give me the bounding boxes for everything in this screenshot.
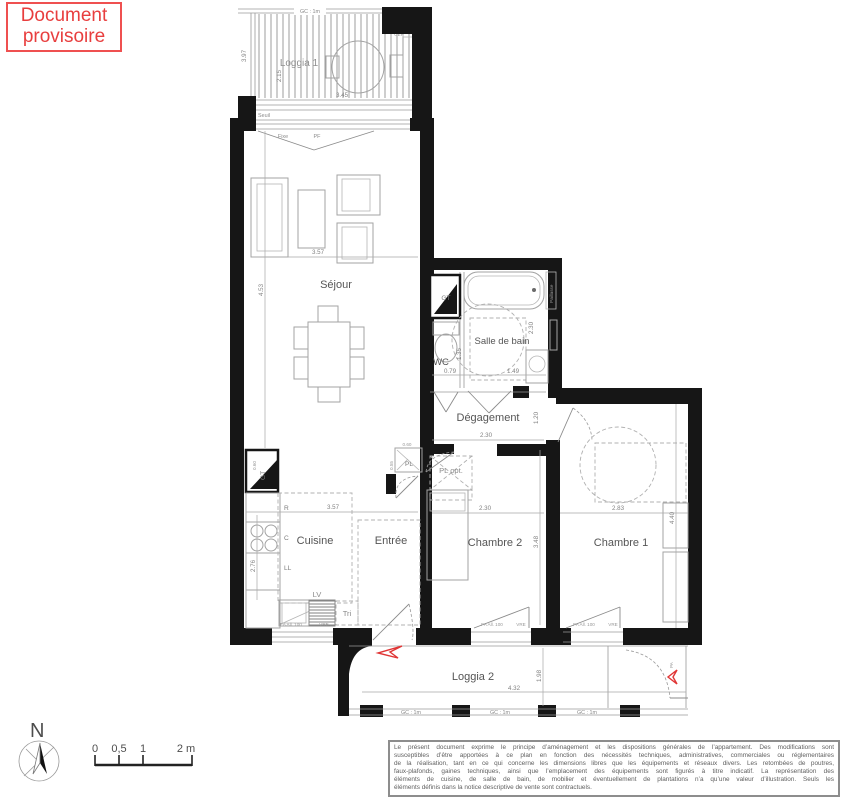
guardrail-label-3: GC : 1m [577,710,598,716]
room-label-sdb: Salle de bain [475,336,530,347]
room-label-sejour: Séjour [320,279,352,291]
room-label-entree: Entrée [375,535,407,547]
loggia2-door-arc [626,650,670,698]
dining-chair-left1 [294,327,308,349]
dim-sdb-height: 2.30 [528,321,535,334]
dining-table [308,322,350,387]
room-label-wc: WC [433,357,449,368]
legal-disclaimer: Le présent document exprime le principe … [388,740,840,797]
dining-chair-right1 [350,327,364,349]
dim-loggia2-width: 4.32 [508,685,521,692]
dim-chambre2-width: 2.30 [479,505,492,512]
toilet-tank [433,322,459,335]
kitchen-window-label: FA All. 100 [280,622,302,627]
dim-gt-width: 0.60 [252,461,257,470]
dim-cuisine-height: 2.76 [250,559,257,572]
chambre1-shutter-label: VRE [608,622,617,627]
wardrobe-1 [663,503,688,548]
washer-label: LL [284,565,292,572]
armchair-1 [337,175,380,215]
sejour-area: Fixe PF Séjour 3.57 4.53 [251,120,418,448]
armchair-2-seat [342,227,367,259]
hob-burner [265,525,277,537]
sofa [251,178,288,257]
dim-pl-depth: 0.55 [389,461,394,470]
room-label-chambre1: Chambre 1 [594,537,648,549]
dim-loggia1-depth: 2.15 [276,69,283,82]
turning-circle-chambre1 [580,427,656,503]
paillasse-label: Paillasse [549,284,554,303]
chambre1-area: Chambre 1 2.83 4.40 FA All. 100 VRE [560,404,688,642]
dim-loggia1-width: 3.45 [336,92,349,99]
room-label-cuisine: Cuisine [297,535,334,547]
bed-chambre2 [427,490,468,580]
dim-sdb-width: 1.49 [507,368,520,375]
dining-chair-left2 [294,357,308,379]
dim-wc-depth: 1.35 [456,347,463,360]
room-label-loggia1: Loggia 1 [280,58,319,69]
compass-needle-light [33,743,40,774]
bed-pillow [430,493,465,511]
room-label-degagement: Dégagement [457,412,520,424]
room-label-chambre2: Chambre 2 [468,537,522,549]
dim-chambre1-width: 2.83 [612,505,625,512]
compass-needle-dark [40,743,47,774]
gt-label-kitchen: GT [260,471,267,480]
dim-degagement-depth: 1.20 [533,411,540,424]
kitchen-counter-outline [278,493,352,603]
walls [230,7,702,717]
disclaimer-line: Le présent document exprime le principe … [394,744,834,752]
gt-label-wc: GT [441,295,450,302]
dim-wc-width: 0.79 [444,368,457,375]
disclaimer-line: susceptibles d’être apportées à ce plan … [394,752,834,760]
guardrail-label-top: GC : 1m [300,9,321,15]
guardrail-label-1: GC : 1m [401,710,422,716]
floor-plan-drawing: GC : 1m Loggia 1 2.15 3.97 3.45 Seuil CE… [0,0,864,800]
bathtub-drain [532,288,536,292]
dim-chambre1-height: 4.40 [669,511,676,524]
disclaimer-line: éléments de cuisine, de salle de bain, d… [394,776,834,784]
dim-sejour-height: 4.53 [258,283,265,296]
washbasin-bowl [529,356,545,372]
disclaimer-line: faux-plafonds, gaines techniques, ainsi … [394,768,834,776]
disclaimer-line: de la réalisation, tant en ce qui concer… [394,760,834,768]
hob-label: C [284,535,289,542]
disclaimer-line: éléments définis dans la notice descript… [394,784,834,792]
dim-sejour-width: 3.57 [312,249,325,256]
hallway-area: Dégagement 2.30 1.20 PL opt. PL 0.60 0.5… [389,408,592,500]
dim-pl-width: 0.60 [403,442,412,447]
sink-bowl [282,603,306,623]
north-compass: N [19,720,59,781]
dining-chair-right2 [350,357,364,379]
chambre2-window-label: FA All. 100 [481,622,503,627]
chambre1-window-label: FA All. 100 [573,622,595,627]
dishwasher-label: LV [313,590,323,599]
north-label: N [30,720,44,742]
scale-2m: 2 m [177,743,195,755]
wardrobe-2 [663,552,688,622]
pl-opt-label: PL opt. [439,466,463,475]
fridge-label: R [284,505,289,512]
room-label-loggia2: Loggia 2 [452,671,494,683]
threshold-label: Seuil [258,113,270,119]
scale-0: 0 [92,743,98,755]
pl-label: PL [405,461,413,468]
coffee-table [298,190,325,248]
dim-loggia1-outer: 3.97 [241,49,248,62]
tri-label: Tri [343,609,352,618]
hob-burner [265,539,277,551]
bathtub-inner [468,276,540,305]
bathtub [464,272,544,309]
bathroom-area: GT WC Paillasse Salle de bain 0.79 1.49 … [430,272,557,413]
chambre1-clearance [595,443,686,502]
dim-chambre2-height: 3.48 [533,535,540,548]
dining-chair-bottom [318,387,340,402]
armchair-1-seat [342,179,370,211]
floor-plan-page: Document provisoire G [0,0,864,800]
guardrail-label-2: GC : 1m [490,710,511,716]
pl-opt-shelf [430,490,472,500]
scale-bar: 0 0,5 1 2 m [92,743,195,766]
dim-degagement-width: 2.30 [480,432,493,439]
sofa-seat [257,184,282,251]
pa-door-label: PA [669,661,674,668]
scale-1: 1 [140,743,146,755]
dim-cuisine-width: 3.57 [327,504,340,511]
dim-loggia2-depth: 1.98 [536,669,543,682]
scale-05: 0,5 [111,743,126,755]
entrance-arrow [378,646,402,658]
dining-chair-top [318,306,338,322]
chambre2-shutter-label: VRE [516,622,525,627]
window-pf-label: PF [314,134,322,140]
entrance-chevron [668,670,677,684]
kitchen-shutter-label: VRE [319,622,328,627]
